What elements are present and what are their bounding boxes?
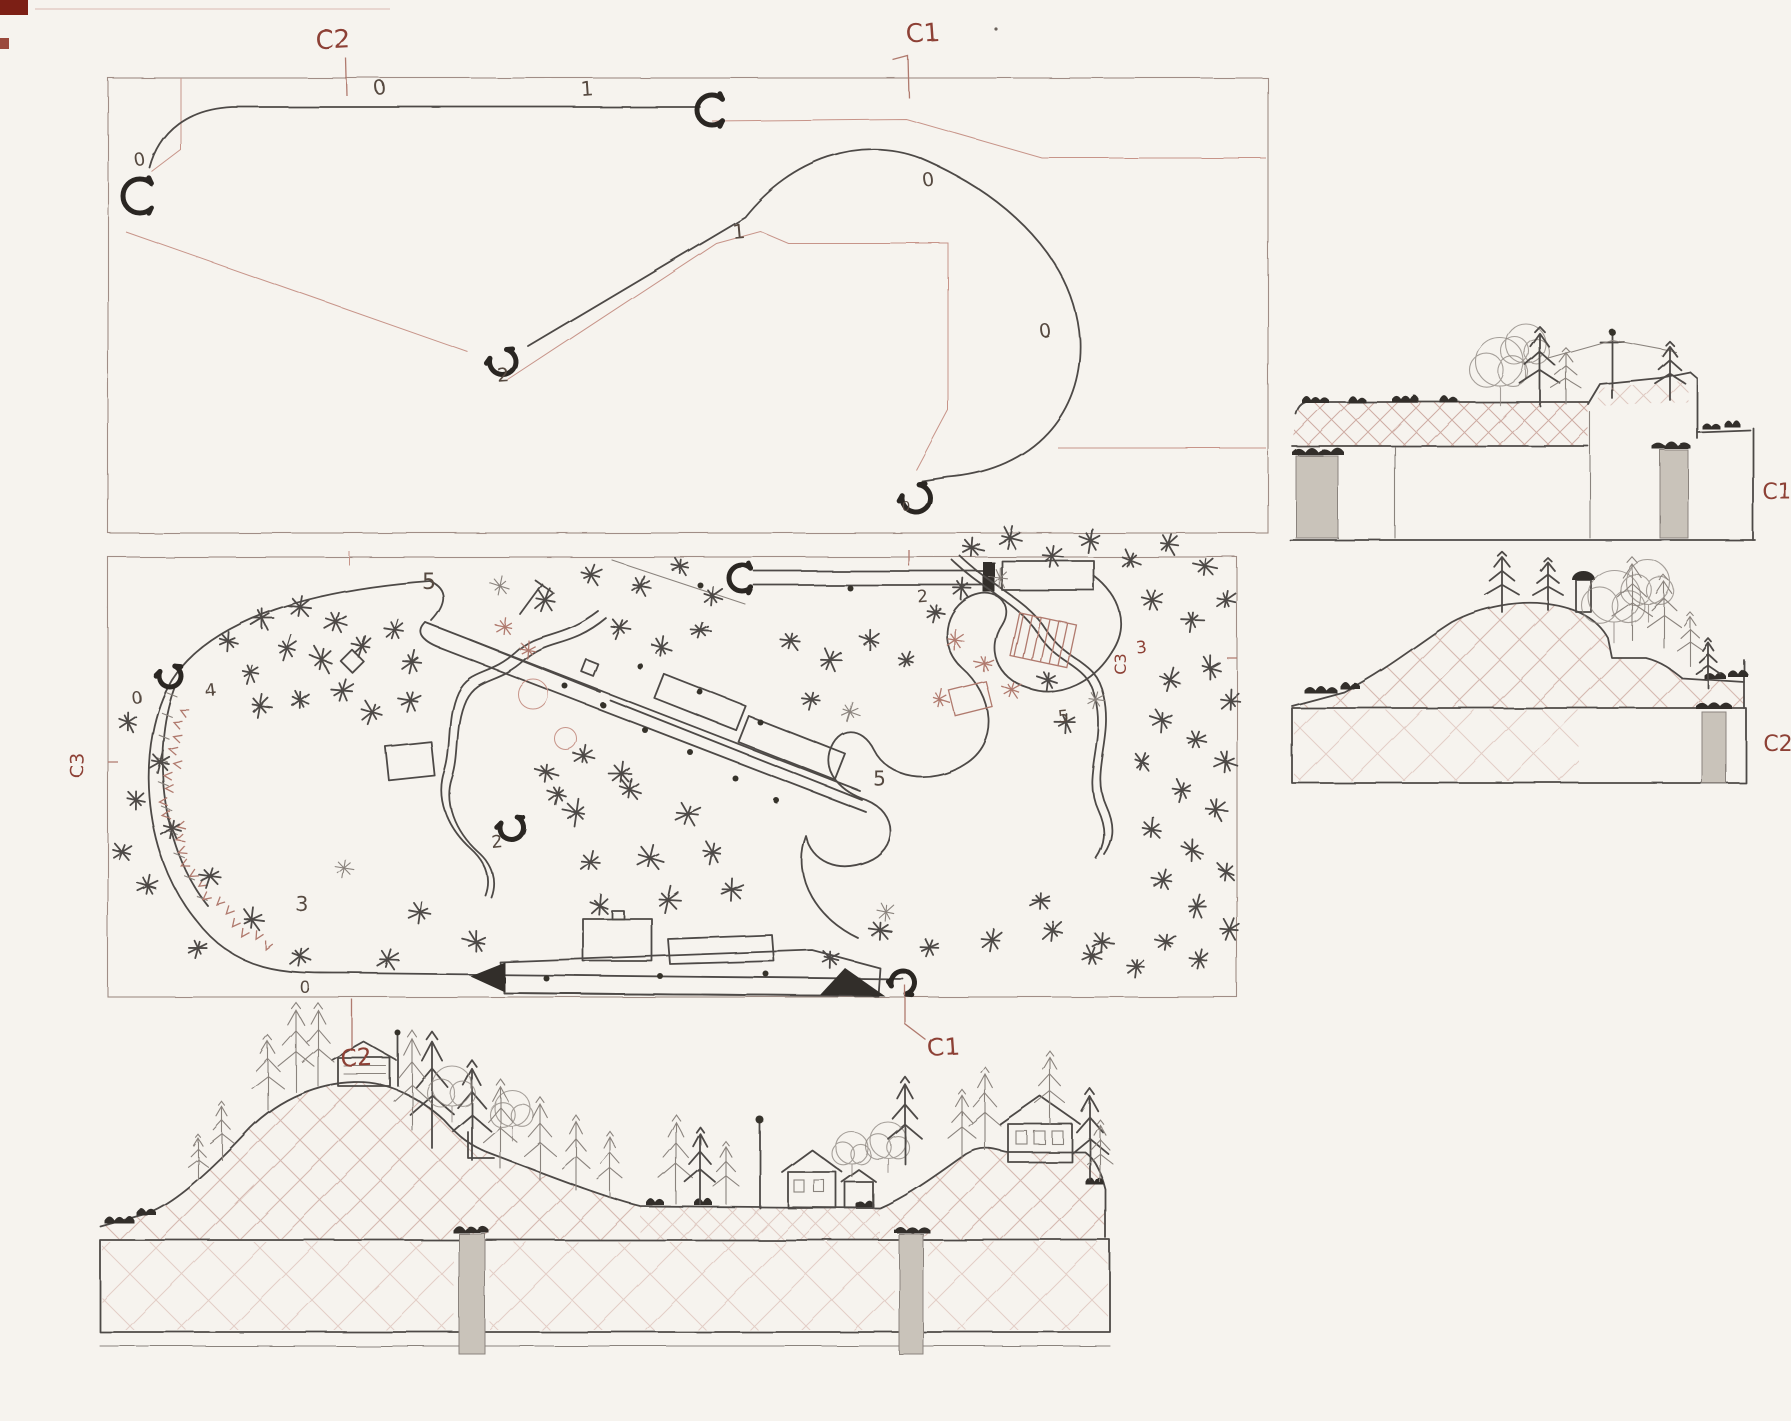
pine-tree-icon xyxy=(685,1127,715,1204)
tree-icon xyxy=(242,665,258,684)
hill-house-roof xyxy=(1000,1096,1080,1124)
rock-face xyxy=(1690,372,1697,438)
tree-icon xyxy=(821,648,842,671)
siding-track xyxy=(754,571,985,585)
tree-icon xyxy=(633,576,651,596)
serpentine-track xyxy=(802,593,1112,938)
tree-icon xyxy=(331,679,353,700)
cliff-mark xyxy=(159,798,168,807)
bush-row xyxy=(1302,396,1329,403)
label-c1-section: C1 xyxy=(1762,480,1791,505)
deciduous-tree-icon xyxy=(866,1122,910,1172)
tree-icon xyxy=(1160,668,1179,692)
bush-row xyxy=(1724,420,1740,427)
tree-icon xyxy=(1206,800,1228,821)
bush-row xyxy=(856,1201,874,1207)
baseboard-hatch xyxy=(1294,710,1579,781)
bush-row xyxy=(136,1208,156,1215)
tree-icon xyxy=(1030,893,1050,909)
tree-icon xyxy=(927,605,944,622)
label-sch-0-lefthook: 0 xyxy=(133,149,148,172)
window xyxy=(1052,1131,1063,1144)
table-leg xyxy=(459,1234,485,1354)
tree-icon xyxy=(637,845,663,869)
tree-icon xyxy=(535,765,559,782)
tree-icon xyxy=(199,868,221,888)
tree-icon xyxy=(1143,817,1161,838)
river xyxy=(960,556,1112,854)
tree-icon xyxy=(384,620,403,639)
pine-tree-icon xyxy=(713,1142,739,1204)
tree-icon xyxy=(877,903,894,921)
tree-icon xyxy=(671,558,688,575)
label-c2-section: C2 xyxy=(1763,732,1791,757)
embankment-wedge xyxy=(470,962,505,992)
bush-row xyxy=(1292,448,1344,455)
tree-icon xyxy=(898,651,913,666)
tree-icon xyxy=(974,657,994,672)
tree-icon xyxy=(489,576,509,595)
tree-icon xyxy=(691,623,711,638)
window xyxy=(1016,1131,1027,1144)
pole-dot xyxy=(757,719,763,725)
deciduous-tree-icon xyxy=(490,1090,534,1140)
tree-icon xyxy=(722,879,743,901)
label-plan-5-top: 5 xyxy=(422,570,436,595)
tree-icon xyxy=(562,798,583,826)
tree-icon xyxy=(611,620,631,639)
cliff-mark xyxy=(238,928,249,939)
tree-icon xyxy=(398,692,421,712)
tree-icon xyxy=(1193,559,1218,575)
tunnel-portal-bottom xyxy=(891,971,915,995)
tree-icon xyxy=(113,844,132,860)
left-hill-body xyxy=(100,1082,640,1240)
tree-icon xyxy=(859,630,878,650)
tree-icon xyxy=(1217,591,1236,607)
yard-slab xyxy=(500,950,880,996)
tree-icon xyxy=(408,902,430,924)
corner-mark xyxy=(0,0,28,15)
label-sch-1-diagonal: 1 xyxy=(731,219,746,244)
label-plan-0-portal-left: 0 xyxy=(130,688,143,709)
bush-row xyxy=(453,1226,489,1233)
tree-icon xyxy=(253,694,272,718)
pole-dot xyxy=(687,749,693,755)
label-plan-0-bottom-left: 0 xyxy=(300,978,311,998)
deciduous-tree-icon xyxy=(832,1132,871,1177)
tree-icon xyxy=(581,850,600,869)
tree-icon xyxy=(659,886,681,913)
embankment-wedge xyxy=(820,968,885,996)
cliff-mark xyxy=(179,707,190,718)
bush-row xyxy=(104,1216,134,1223)
tree-icon xyxy=(580,564,601,585)
cliff-mark xyxy=(173,759,182,768)
tree-icon xyxy=(1173,779,1191,802)
terrain-band xyxy=(1292,401,1588,446)
pine-tree-icon xyxy=(1612,557,1652,640)
tree-icon xyxy=(590,895,607,915)
pine-tree-icon xyxy=(1677,612,1703,666)
window xyxy=(814,1180,824,1192)
tree-icon xyxy=(1142,590,1162,610)
pine-tree-icon xyxy=(1647,575,1681,648)
tree-icon xyxy=(703,841,720,864)
tree-icon xyxy=(279,635,297,661)
table-leg xyxy=(899,1234,923,1354)
bush-row xyxy=(1440,396,1458,403)
tree-icon xyxy=(953,578,971,600)
tree-icon xyxy=(1150,710,1171,733)
scan-artifacts xyxy=(0,0,998,49)
corner-mark-small xyxy=(0,38,9,49)
pole-dot xyxy=(642,727,648,733)
pole-ball xyxy=(395,1030,401,1036)
river xyxy=(952,560,1104,858)
pine-tree-icon xyxy=(659,1115,693,1204)
label-plan-5-right: 5 xyxy=(1057,707,1070,728)
pier-leg xyxy=(1702,712,1726,783)
tree-icon xyxy=(921,939,939,957)
pine-tree-icon xyxy=(252,1035,284,1110)
hand-drawn-model-railway-plan-sheet: C2C1010120005403022553C3C3C2C1C1C2 xyxy=(0,0,1791,1421)
label-sch-1-straight: 1 xyxy=(580,77,594,102)
end-loop-0-left xyxy=(123,179,152,213)
bush-row xyxy=(894,1226,930,1233)
label-plan-2-siding: 2 xyxy=(916,587,929,608)
cliff-mark xyxy=(262,940,273,951)
lamp-head xyxy=(756,1116,764,1124)
tree-icon xyxy=(1122,549,1140,567)
bush-row xyxy=(646,1198,664,1205)
tree-icon xyxy=(495,618,512,635)
label-plan-3-cliff: 3 xyxy=(296,892,309,916)
bush-row xyxy=(1652,442,1691,449)
tunnel-loop-top xyxy=(729,565,751,591)
pine-tree-icon xyxy=(888,1077,922,1164)
tree-icon xyxy=(361,700,382,724)
tree-icon xyxy=(652,637,672,657)
pine-tree-icon xyxy=(597,1131,623,1198)
section-cut-tick-c1 xyxy=(893,56,909,98)
pier-leg xyxy=(1660,450,1688,538)
cliff-mark xyxy=(172,732,182,742)
label-c1-elevation: C1 xyxy=(926,1032,960,1062)
label-c3-right: C3 xyxy=(1111,653,1130,674)
pine-tree-icon xyxy=(278,1003,314,1092)
pole-dot xyxy=(732,775,738,781)
section-cut-tick-c2 xyxy=(346,58,347,96)
main-line xyxy=(528,150,1080,481)
pole-finial xyxy=(1609,329,1616,336)
tree-icon xyxy=(842,702,860,721)
goods-shed xyxy=(738,716,845,780)
label-plan-5-serpentine: 5 xyxy=(874,767,887,791)
schematic-panel: C2C101012000 xyxy=(108,18,1268,533)
label-sch-0-curve-top: 0 xyxy=(921,168,936,191)
window xyxy=(794,1180,804,1192)
tree-icon xyxy=(1037,672,1057,691)
tree-icon xyxy=(780,633,799,650)
tree-icon xyxy=(675,803,700,826)
tree-icon xyxy=(547,787,566,804)
label-c3-left: C3 xyxy=(66,752,88,777)
baseboard-hatch xyxy=(928,1242,1108,1330)
pole-dot xyxy=(763,971,769,977)
tree-icon xyxy=(573,745,594,763)
small-house-roof xyxy=(842,1170,876,1182)
tree-icon xyxy=(1189,950,1208,969)
cross-section-c2 xyxy=(1292,552,1748,783)
tree-icon xyxy=(982,929,1002,951)
cliff-mark xyxy=(163,771,172,780)
cliff-mark xyxy=(223,905,234,916)
barn xyxy=(949,682,992,716)
tree-icon xyxy=(1079,528,1099,552)
tree-icon xyxy=(963,538,984,556)
bush-row xyxy=(1696,702,1732,709)
pond xyxy=(555,728,577,750)
pole-dot xyxy=(847,585,853,591)
tree-icon xyxy=(1161,534,1178,555)
label-c2-elevation: C2 xyxy=(340,1043,373,1073)
cliff-mark xyxy=(162,810,171,819)
pine-tree-icon xyxy=(1035,1051,1065,1124)
tree-icon xyxy=(802,693,820,710)
cliff-mark xyxy=(172,718,182,728)
tree-icon xyxy=(325,613,348,633)
tree-icon xyxy=(620,779,641,800)
label-c2-top: C2 xyxy=(314,24,350,56)
tree-icon xyxy=(933,689,951,708)
tree-icon xyxy=(1042,922,1062,941)
tree-icon xyxy=(220,632,238,651)
tree-icon xyxy=(161,819,180,839)
tree-icon xyxy=(1093,933,1114,952)
tree-icon xyxy=(119,712,136,732)
label-sch-0-curve-right: 0 xyxy=(1038,319,1053,342)
pole-dot xyxy=(562,683,568,689)
tree-icon xyxy=(1083,946,1102,964)
tree-icon xyxy=(1188,894,1205,917)
tree-icon xyxy=(1152,869,1172,889)
pole-dot xyxy=(600,702,606,708)
tree-icon xyxy=(292,691,308,708)
elevation-panel: C2C1 xyxy=(100,1003,1113,1354)
bush-row xyxy=(1702,423,1720,429)
tree-icon xyxy=(462,931,485,951)
tree-icon xyxy=(311,647,332,674)
pencil-drawing: C2C1010120005403022553C3C3C2C1C1C2 xyxy=(66,18,1791,1354)
baseboard-hatch xyxy=(490,1242,894,1330)
tree-icon xyxy=(1215,751,1238,772)
main-line xyxy=(150,107,700,168)
tree-icon xyxy=(290,949,311,966)
tree-icon xyxy=(1127,960,1144,978)
roof-vent xyxy=(612,911,624,919)
bush-row xyxy=(1304,686,1337,693)
pole-dot xyxy=(657,973,663,979)
tree-icon xyxy=(1135,753,1148,770)
cliff-mark xyxy=(229,918,240,929)
signal-mast xyxy=(520,580,552,614)
board-outline xyxy=(508,231,948,470)
pier-leg xyxy=(1296,456,1338,538)
bush-row xyxy=(1728,670,1748,677)
tree-icon xyxy=(402,650,421,673)
mountain-hut xyxy=(385,742,434,781)
hut xyxy=(582,660,599,677)
pole-dot xyxy=(773,797,779,803)
label-sch-0-bottom-hook: 0 xyxy=(902,500,910,515)
tree-icon xyxy=(1182,612,1205,632)
label-sch-0-straight: 0 xyxy=(373,75,388,100)
tree-icon xyxy=(335,860,354,879)
paper-speck xyxy=(994,27,997,30)
baseboard-hatch xyxy=(102,1242,454,1330)
tree-icon xyxy=(1203,655,1221,679)
tree-icon xyxy=(1217,863,1234,881)
tree-icon xyxy=(999,526,1022,549)
label-plan-3-right: 3 xyxy=(1135,638,1148,659)
board-outline xyxy=(712,119,1266,158)
board-outline xyxy=(126,232,468,352)
pine-tree-icon xyxy=(302,1003,334,1086)
tree-icon xyxy=(869,922,892,939)
tunnel-portal-2 xyxy=(500,817,524,840)
pole-dot xyxy=(697,689,703,695)
schematic-border xyxy=(108,78,1268,533)
pine-tree-icon xyxy=(969,1067,1001,1150)
bush-row xyxy=(694,1198,712,1205)
pole-dot xyxy=(637,663,643,669)
tree-icon xyxy=(1187,731,1207,748)
tree-icon xyxy=(127,791,145,809)
plan-panel: 5403022553C3C3 xyxy=(66,526,1240,1051)
pole-dot xyxy=(543,975,549,981)
pine-tree-icon xyxy=(562,1115,590,1190)
tree-icon xyxy=(245,908,265,930)
valley-body xyxy=(640,1206,880,1240)
tree-icon xyxy=(189,941,207,958)
girder-bridge xyxy=(1002,561,1094,590)
bush-row xyxy=(1348,396,1366,403)
pole-dot xyxy=(697,582,703,588)
tree-icon xyxy=(1155,935,1175,950)
tree-icon xyxy=(823,951,839,968)
cliff-mark xyxy=(214,897,225,908)
deciduous-tree-icon xyxy=(1470,338,1528,405)
lower-station-building xyxy=(583,919,652,961)
label-c1-top: C1 xyxy=(906,18,941,49)
house-roof xyxy=(782,1150,842,1172)
village-house xyxy=(788,1172,836,1208)
label-sch-2-hook: 2 xyxy=(497,365,511,388)
window xyxy=(1034,1131,1045,1144)
tree-icon xyxy=(1181,839,1203,861)
station-track xyxy=(610,700,862,800)
track-curve xyxy=(1094,576,1121,652)
label-plan-4-left: 4 xyxy=(203,679,217,701)
label-plan-2-portal: 2 xyxy=(491,831,505,853)
tree-icon xyxy=(378,950,399,970)
station-building xyxy=(654,674,745,730)
tower-dome xyxy=(1572,571,1595,580)
bush-row xyxy=(1392,395,1419,402)
layout-drawing: C2C1010120005403022553C3C3C2C1C1C2 xyxy=(0,0,1791,1421)
platform xyxy=(668,935,774,964)
shelf-surface xyxy=(1697,430,1750,432)
tree-icon xyxy=(609,762,631,782)
cliff-mark xyxy=(168,745,178,755)
station-edge xyxy=(440,648,866,812)
bush-row xyxy=(1340,682,1360,689)
tree-icon xyxy=(137,875,158,894)
cross-section-c1 xyxy=(1290,324,1755,540)
hill-body xyxy=(1292,603,1744,708)
cliff-mark xyxy=(253,930,264,941)
